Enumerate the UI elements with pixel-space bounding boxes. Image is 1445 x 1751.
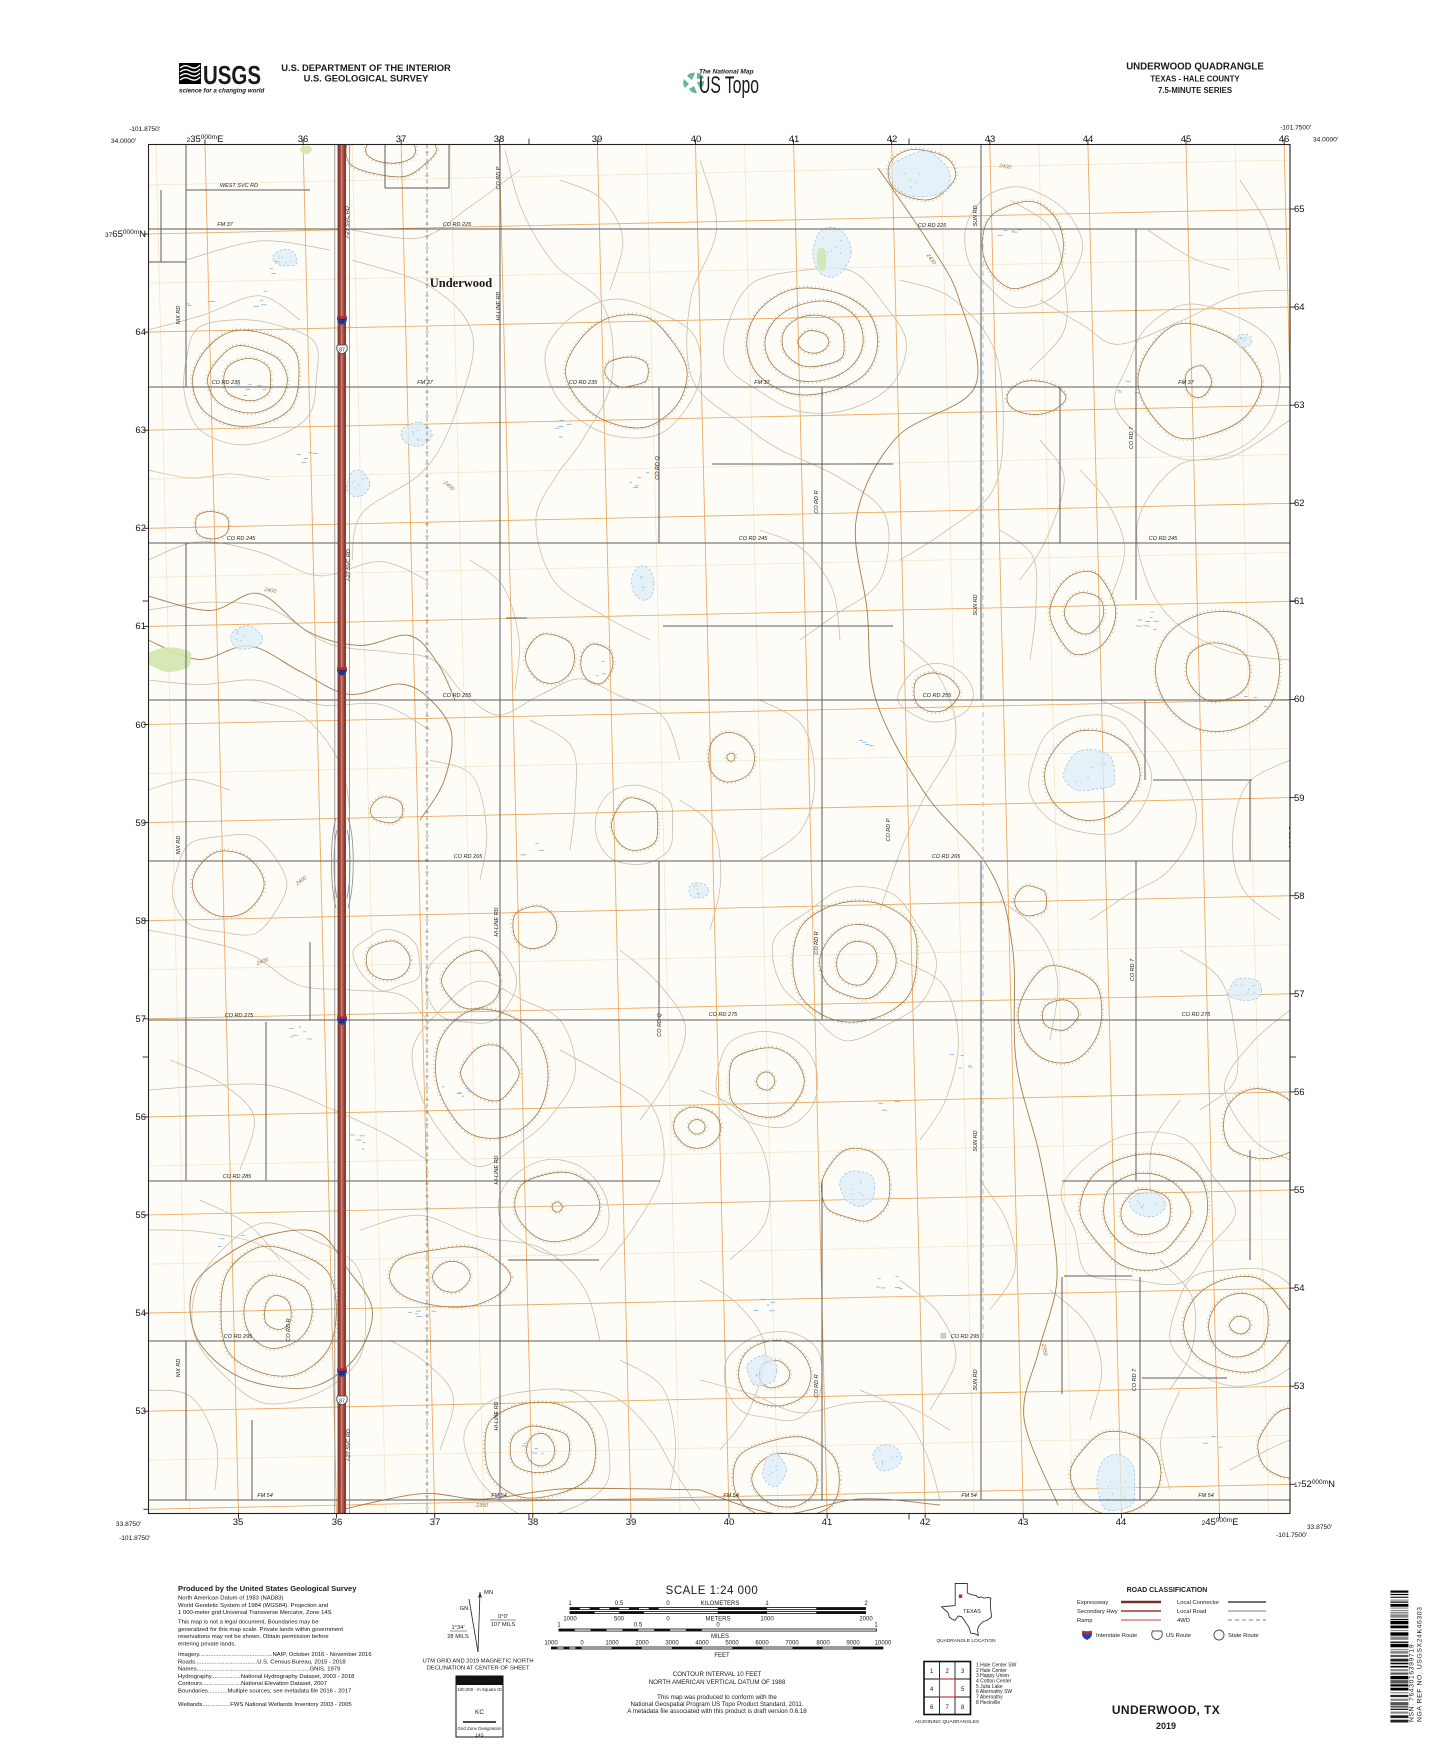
- svg-text:-101.8750′: -101.8750′: [129, 126, 161, 133]
- svg-text:CO RD 275: CO RD 275: [709, 1012, 738, 1018]
- svg-text:2000: 2000: [635, 1641, 649, 1647]
- svg-text:World Geodetic System of 1984: World Geodetic System of 1984 (WGS84). P…: [178, 1603, 328, 1609]
- svg-text:State Route: State Route: [1228, 1633, 1259, 1639]
- svg-text:Produced by the United States: Produced by the United States Geological…: [178, 1584, 357, 1593]
- svg-text:CO RD 275: CO RD 275: [1182, 1012, 1211, 1018]
- svg-text:DECLINATION AT CENTER OF SHEET: DECLINATION AT CENTER OF SHEET: [427, 1666, 530, 1672]
- svg-text:27: 27: [339, 319, 345, 325]
- svg-text:CO RD 275: CO RD 275: [225, 1013, 254, 1019]
- svg-text:56: 56: [135, 1112, 146, 1123]
- svg-text:57: 57: [1294, 989, 1305, 1000]
- svg-text:KILOMETERS: KILOMETERS: [701, 1601, 740, 1607]
- svg-text:Ramp: Ramp: [1077, 1618, 1092, 1624]
- svg-text:entering private lands.: entering private lands.: [178, 1641, 236, 1647]
- svg-text:34.0000′: 34.0000′: [1313, 137, 1339, 144]
- svg-text:3000: 3000: [665, 1641, 679, 1647]
- svg-text:107 MILS: 107 MILS: [491, 1622, 516, 1628]
- svg-text:33.8750′: 33.8750′: [1307, 1524, 1333, 1531]
- svg-text:FM 37: FM 37: [217, 222, 234, 228]
- svg-text:TEXAS: TEXAS: [963, 1609, 981, 1615]
- svg-text:CO RD 255: CO RD 255: [923, 693, 952, 699]
- svg-text:60: 60: [135, 720, 146, 731]
- svg-text:Imagery.......................: Imagery.................................…: [178, 1652, 372, 1658]
- svg-text:61: 61: [1294, 596, 1305, 607]
- svg-text:CO RD R: CO RD R: [814, 1374, 820, 1397]
- svg-text:-101.7500′: -101.7500′: [1280, 125, 1312, 132]
- svg-text:Boundaries............Multiple: Boundaries............Multiple sources; …: [178, 1689, 351, 1695]
- svg-text:ROAD CLASSIFICATION: ROAD CLASSIFICATION: [1127, 1587, 1208, 1594]
- svg-text:2000: 2000: [859, 1617, 873, 1623]
- svg-text:54: 54: [1294, 1283, 1305, 1294]
- svg-text:5000: 5000: [725, 1641, 739, 1647]
- svg-text:This map is not a legal docume: This map is not a legal document. Bounda…: [178, 1620, 319, 1626]
- svg-text:SUN RD: SUN RD: [973, 205, 979, 226]
- svg-text:CO RD 7: CO RD 7: [1130, 958, 1136, 981]
- svg-text:CO RD 255: CO RD 255: [443, 693, 472, 699]
- svg-text:59: 59: [135, 818, 146, 829]
- svg-text:U.S. DEPARTMENT OF THE INTERIO: U.S. DEPARTMENT OF THE INTERIOR: [281, 62, 451, 73]
- svg-text:55: 55: [135, 1210, 146, 1221]
- svg-text:39: 39: [626, 1517, 637, 1528]
- svg-text:58: 58: [1294, 891, 1305, 902]
- svg-text:SUN RD: SUN RD: [973, 1130, 979, 1151]
- svg-text:I-27 SVC RD: I-27 SVC RD: [346, 1429, 352, 1461]
- svg-text:60: 60: [1294, 694, 1305, 705]
- svg-text:CO RD P: CO RD P: [496, 166, 502, 189]
- svg-text:100,000 - m Square ID: 100,000 - m Square ID: [457, 1687, 501, 1692]
- svg-text:40: 40: [724, 1517, 735, 1528]
- svg-text:MN: MN: [484, 1590, 493, 1596]
- svg-text:27: 27: [339, 1019, 345, 1025]
- svg-text:10000: 10000: [875, 1641, 892, 1647]
- svg-text:1 000-meter grid:Universal Tra: 1 000-meter grid:Universal Transverse Me…: [178, 1610, 332, 1616]
- svg-text:MILES: MILES: [711, 1634, 729, 1640]
- svg-text:KC: KC: [475, 1709, 484, 1716]
- svg-text:0.5: 0.5: [615, 1601, 624, 1607]
- svg-text:43: 43: [1018, 1517, 1029, 1528]
- svg-text:44: 44: [1116, 1517, 1127, 1528]
- svg-text:SCALE 1:24 000: SCALE 1:24 000: [666, 1585, 759, 1597]
- svg-text:NORTH AMERICAN VERTICAL DATUM: NORTH AMERICAN VERTICAL DATUM OF 1988: [649, 1679, 786, 1686]
- svg-text:37: 37: [430, 1517, 441, 1528]
- svg-text:A metadata file associated wit: A metadata file associated with this pro…: [627, 1708, 807, 1715]
- svg-text:HI-LINE RD: HI-LINE RD: [494, 907, 500, 936]
- svg-text:Expressway: Expressway: [1077, 1600, 1108, 1606]
- svg-text:Roads.........................: Roads...................................…: [178, 1659, 346, 1665]
- svg-text:Wetlands.................FWS: Wetlands.................FWS National We…: [178, 1702, 352, 1708]
- svg-text:CO RD R: CO RD R: [814, 931, 820, 954]
- svg-text:Underwood: Underwood: [430, 276, 493, 290]
- svg-text:2350: 2350: [475, 1503, 488, 1509]
- svg-text:FM 54: FM 54: [1198, 1493, 1214, 1499]
- svg-text:4000: 4000: [695, 1641, 709, 1647]
- svg-text:27: 27: [339, 670, 345, 676]
- svg-text:41: 41: [822, 1517, 833, 1528]
- svg-text:HI-LINE RD: HI-LINE RD: [496, 291, 502, 320]
- svg-text:-101.8750′: -101.8750′: [119, 1535, 151, 1542]
- svg-text:reservations may not be shown.: reservations may not be shown. Obtain pe…: [178, 1634, 329, 1640]
- svg-text:HI-LINE RD: HI-LINE RD: [494, 1155, 500, 1184]
- svg-text:Contours......................: Contours........................National…: [178, 1681, 327, 1687]
- svg-text:CO RD 295: CO RD 295: [951, 1334, 980, 1340]
- svg-text:Names.........................: Names...................................…: [178, 1667, 340, 1673]
- svg-text:27: 27: [339, 1371, 345, 1377]
- svg-text:FM 54: FM 54: [257, 1493, 273, 1499]
- svg-text:9000: 9000: [846, 1641, 860, 1647]
- svg-text:I-27 SVC RD: I-27 SVC RD: [346, 549, 352, 581]
- svg-text:7.5-MINUTE SERIES: 7.5-MINUTE SERIES: [1158, 86, 1232, 95]
- svg-text:CO RD 265: CO RD 265: [454, 854, 483, 860]
- svg-text:CO RD Q: CO RD Q: [657, 1013, 663, 1037]
- svg-text:14S: 14S: [475, 1733, 484, 1739]
- svg-text:28 MILS: 28 MILS: [447, 1634, 469, 1640]
- svg-text:6000: 6000: [755, 1641, 769, 1647]
- svg-text:CONTOUR INTERVAL 10 FEET: CONTOUR INTERVAL 10 FEET: [673, 1671, 762, 1678]
- svg-text:FEET: FEET: [714, 1653, 730, 1659]
- svg-text:science for a changing world: science for a changing world: [179, 88, 264, 95]
- svg-text:55: 55: [1294, 1185, 1305, 1196]
- svg-text:4WD: 4WD: [1177, 1618, 1190, 1624]
- svg-text:42: 42: [920, 1517, 931, 1528]
- svg-text:CO RD 235: CO RD 235: [569, 380, 598, 386]
- svg-text:CO RD 295: CO RD 295: [224, 1334, 253, 1340]
- svg-text:CO RD 7: CO RD 7: [1132, 1368, 1138, 1391]
- svg-text:1000: 1000: [605, 1641, 619, 1647]
- svg-text:0.5: 0.5: [634, 1623, 643, 1629]
- svg-text:35: 35: [233, 1517, 244, 1528]
- svg-text:FM 37: FM 37: [417, 380, 434, 386]
- svg-text:57: 57: [135, 1014, 146, 1025]
- svg-text:SUN RD: SUN RD: [973, 594, 979, 615]
- svg-text:CO RD P: CO RD P: [886, 818, 892, 841]
- svg-text:1000: 1000: [563, 1617, 577, 1623]
- svg-text:8000: 8000: [816, 1641, 830, 1647]
- svg-text:QUADRANGLE LOCATION: QUADRANGLE LOCATION: [936, 1638, 996, 1644]
- svg-text:UNDERWOOD, TX: UNDERWOOD, TX: [1112, 1703, 1220, 1717]
- svg-text:SUN RD: SUN RD: [973, 1369, 979, 1390]
- svg-text:CO RD 225: CO RD 225: [443, 222, 472, 228]
- svg-text:US Route: US Route: [1166, 1633, 1191, 1639]
- svg-text:WEST SVC RD: WEST SVC RD: [220, 183, 258, 189]
- svg-text:63: 63: [1294, 400, 1305, 411]
- svg-text:Interstate Route: Interstate Route: [1096, 1633, 1137, 1639]
- svg-text:8 Heckville: 8 Heckville: [976, 1700, 1000, 1706]
- svg-text:56: 56: [1294, 1087, 1305, 1098]
- svg-text:GN: GN: [460, 1606, 469, 1612]
- svg-text:1000: 1000: [544, 1641, 558, 1647]
- svg-text:62: 62: [1294, 498, 1305, 509]
- svg-text:87: 87: [339, 1398, 345, 1404]
- svg-text:UNDERWOOD QUADRANGLE: UNDERWOOD QUADRANGLE: [1126, 62, 1264, 73]
- svg-text:This map was produced to confo: This map was produced to conform with th…: [657, 1694, 777, 1701]
- svg-text:40: 40: [691, 134, 702, 145]
- svg-text:-101.7500′: -101.7500′: [1276, 1532, 1308, 1539]
- svg-text:ADJOINING QUADRANGLES: ADJOINING QUADRANGLES: [915, 1719, 979, 1725]
- svg-text:CO RD 245: CO RD 245: [227, 536, 256, 542]
- svg-text:CO RD 265: CO RD 265: [932, 854, 961, 860]
- svg-text:UTM GRID AND 2019 MAGNETIC NOR: UTM GRID AND 2019 MAGNETIC NORTH: [422, 1659, 533, 1665]
- svg-text:2019: 2019: [1156, 1721, 1176, 1731]
- svg-text:Local Connector: Local Connector: [1177, 1600, 1219, 1606]
- svg-text:FM 54: FM 54: [723, 1493, 739, 1499]
- svg-text:HI-LINE RD: HI-LINE RD: [494, 1401, 500, 1430]
- svg-text:North American Datum of 1983 (: North American Datum of 1983 (NAD83): [178, 1596, 283, 1602]
- svg-text:7000: 7000: [785, 1641, 799, 1647]
- svg-text:1000: 1000: [760, 1617, 774, 1623]
- svg-text:I-27 SVC RD: I-27 SVC RD: [345, 206, 351, 238]
- svg-text:National Geospatial Program US: National Geospatial Program US Topo Prod…: [630, 1701, 803, 1708]
- svg-text:Grid Zone Designation: Grid Zone Designation: [458, 1726, 502, 1731]
- svg-text:58: 58: [135, 916, 146, 927]
- svg-text:59: 59: [1294, 793, 1305, 804]
- svg-text:Local Road: Local Road: [1177, 1609, 1206, 1615]
- svg-text:NIX RD: NIX RD: [176, 1359, 182, 1378]
- svg-text:CO RD 245: CO RD 245: [739, 536, 768, 542]
- svg-text:NIX RD: NIX RD: [176, 836, 182, 855]
- svg-text:NGA REF NO. USGSX24K46303: NGA REF NO. USGSX24K46303: [1417, 1607, 1424, 1723]
- svg-text:FM 54: FM 54: [961, 1493, 977, 1499]
- svg-text:CO RD R: CO RD R: [814, 490, 820, 513]
- svg-text:1°34′: 1°34′: [451, 1625, 464, 1631]
- svg-text:FM 37: FM 37: [754, 380, 771, 386]
- svg-text:NSN. 7643016399719: NSN. 7643016399719: [1409, 1644, 1416, 1722]
- svg-text:53: 53: [1294, 1381, 1305, 1392]
- svg-text:33.8750′: 33.8750′: [116, 1521, 142, 1528]
- svg-text:CO RD 235: CO RD 235: [212, 380, 241, 386]
- svg-text:500: 500: [614, 1617, 625, 1623]
- svg-text:CO RD 7: CO RD 7: [1129, 426, 1135, 449]
- svg-text:CO RD Q: CO RD Q: [655, 456, 661, 480]
- svg-text:FM 54: FM 54: [491, 1493, 507, 1499]
- svg-text:0°0′: 0°0′: [498, 1614, 508, 1620]
- svg-text:Secondary Hwy: Secondary Hwy: [1077, 1609, 1118, 1615]
- svg-text:NIX RD: NIX RD: [176, 306, 182, 325]
- svg-text:CO RD 245: CO RD 245: [1149, 536, 1178, 542]
- svg-text:USGS: USGS: [203, 60, 261, 90]
- svg-text:Hydrography..................N: Hydrography..................National Hy…: [178, 1674, 355, 1680]
- svg-text:CO RD R: CO RD R: [286, 1318, 292, 1341]
- svg-text:64: 64: [1294, 302, 1305, 313]
- svg-text:65: 65: [1294, 204, 1305, 215]
- svg-text:U.S. National Grid: U.S. National Grid: [457, 1679, 501, 1685]
- svg-text:TEXAS - HALE COUNTY: TEXAS - HALE COUNTY: [1150, 75, 1240, 84]
- svg-text:CO RD 225: CO RD 225: [918, 223, 947, 229]
- svg-text:87: 87: [339, 347, 345, 353]
- svg-text:U.S. GEOLOGICAL SURVEY: U.S. GEOLOGICAL SURVEY: [304, 73, 429, 84]
- svg-text:34.0000′: 34.0000′: [111, 138, 137, 145]
- svg-text:generalized for this map scale: generalized for this map scale. Private …: [178, 1627, 343, 1633]
- svg-text:CO RD 285: CO RD 285: [223, 1174, 252, 1180]
- svg-text:FM 37: FM 37: [1178, 380, 1195, 386]
- svg-text:US Topo: US Topo: [699, 72, 759, 99]
- svg-text:36: 36: [332, 1517, 343, 1528]
